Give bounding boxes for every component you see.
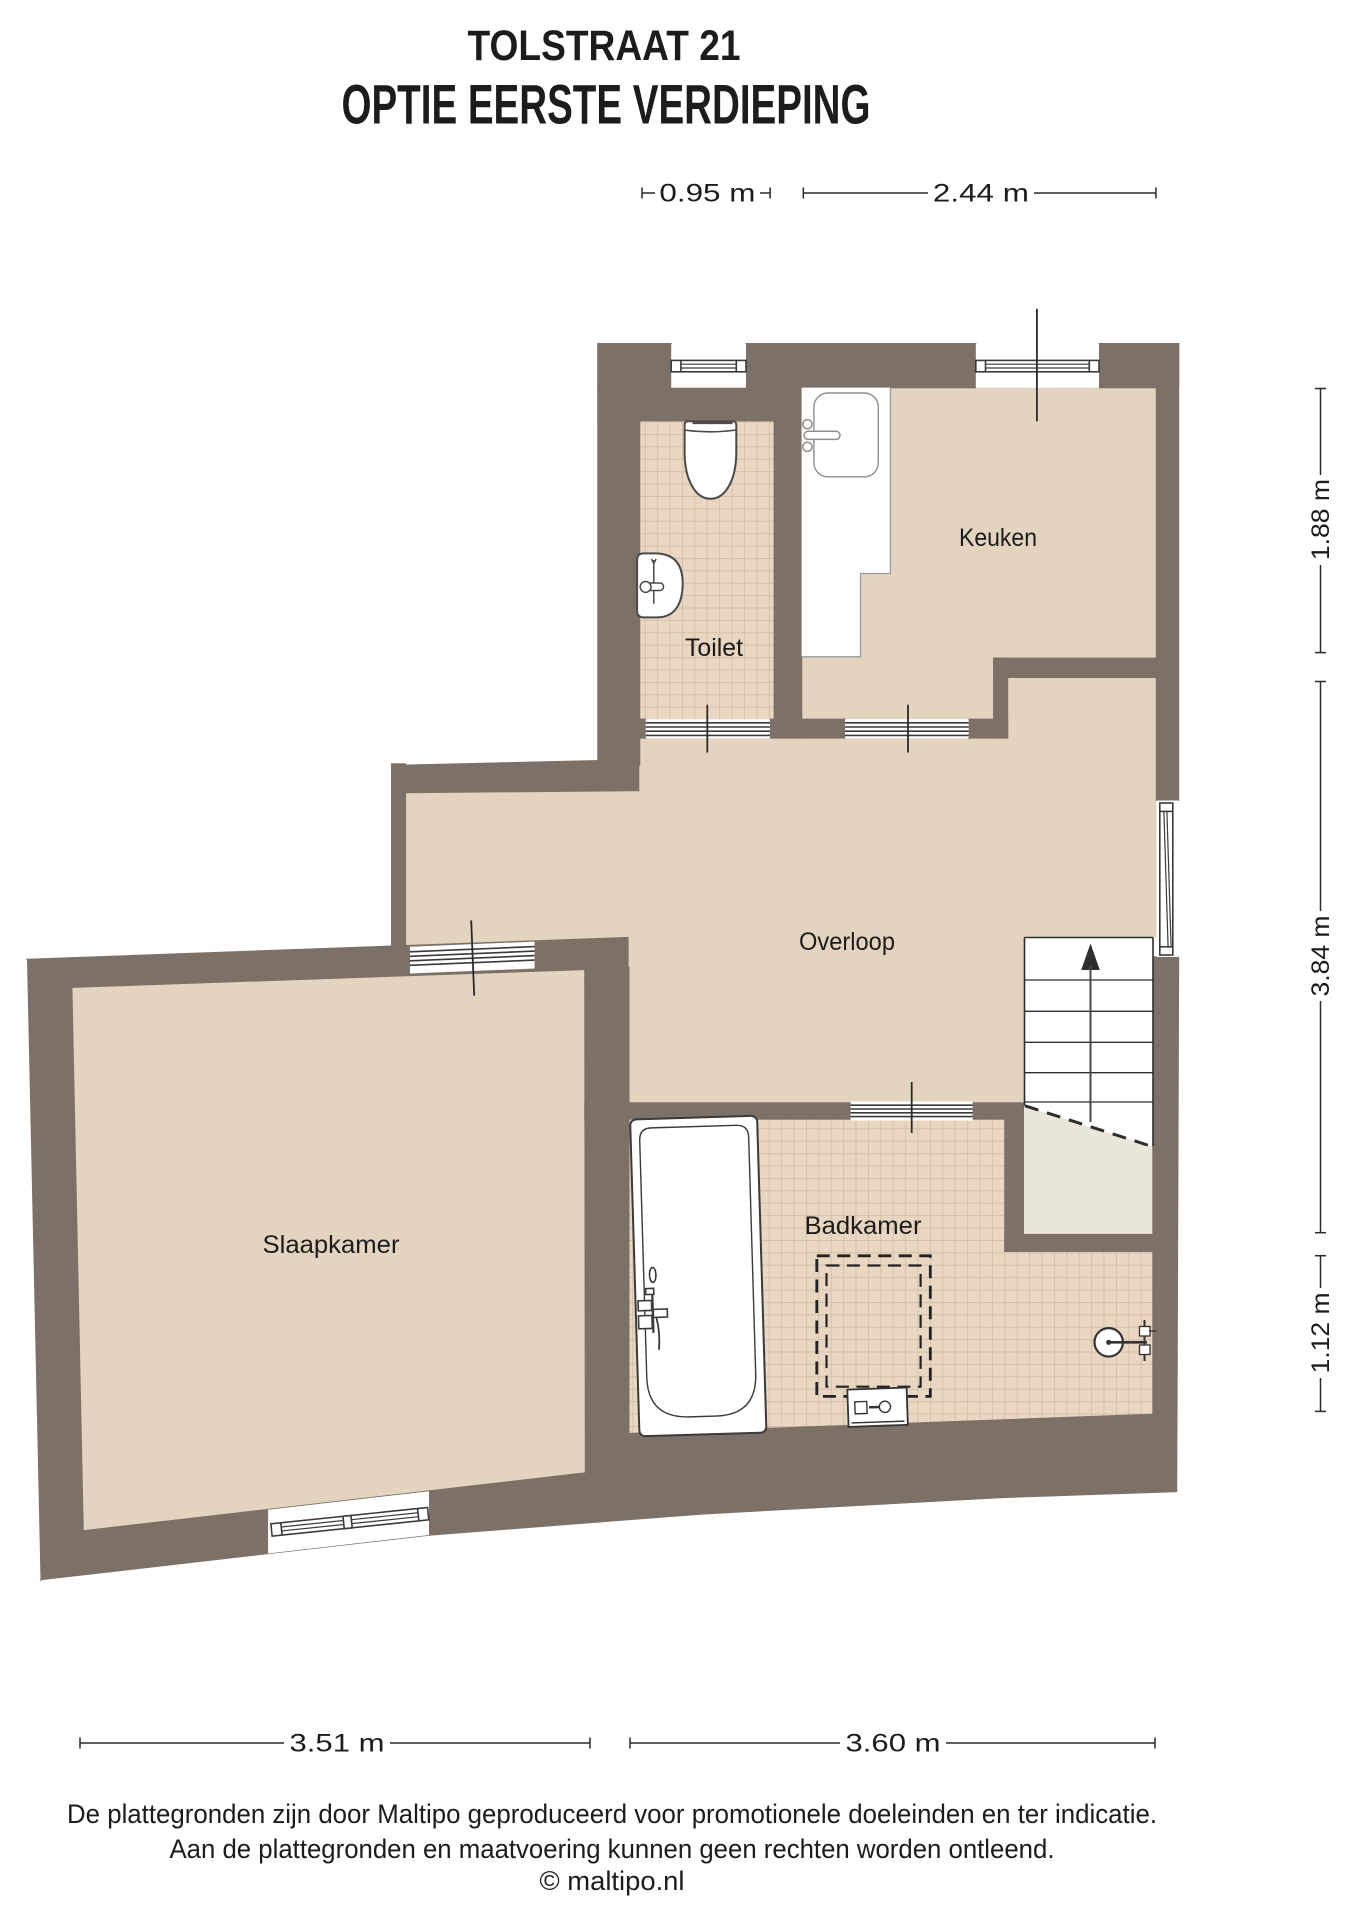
svg-text:3.51 m: 3.51 m: [290, 1730, 385, 1758]
svg-text:3.60 m: 3.60 m: [846, 1730, 941, 1758]
svg-text:2.44 m: 2.44 m: [933, 180, 1029, 208]
svg-text:Aan de plattegronden en maatvo: Aan de plattegronden en maatvoering kunn…: [170, 1834, 1055, 1864]
svg-text:Slaapkamer: Slaapkamer: [263, 1231, 400, 1259]
svg-text:Overloop: Overloop: [799, 928, 895, 956]
svg-text:Toilet: Toilet: [685, 634, 743, 662]
svg-text:3.84 m: 3.84 m: [1307, 916, 1335, 997]
svg-text:Badkamer: Badkamer: [805, 1212, 922, 1240]
svg-text:0.95 m: 0.95 m: [659, 180, 755, 208]
svg-text:TOLSTRAAT 21: TOLSTRAAT 21: [468, 22, 741, 70]
svg-text:1.12 m: 1.12 m: [1307, 1292, 1335, 1373]
svg-text:1.88 m: 1.88 m: [1307, 479, 1335, 560]
svg-text:OPTIE EERSTE VERDIEPING: OPTIE EERSTE VERDIEPING: [342, 73, 871, 136]
svg-text:© maltipo.nl: © maltipo.nl: [540, 1866, 685, 1896]
svg-text:De plattegronden zijn door Mal: De plattegronden zijn door Maltipo gepro…: [67, 1799, 1157, 1829]
svg-text:Keuken: Keuken: [959, 524, 1037, 552]
